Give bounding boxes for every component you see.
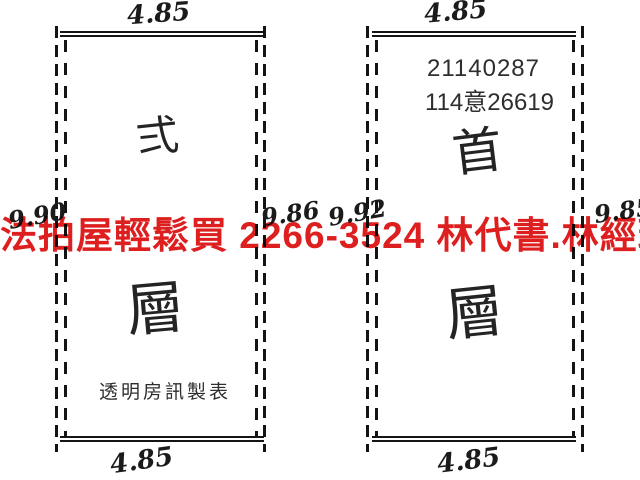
right-unit-border-bottom bbox=[372, 436, 576, 442]
right-unit-case-number-line1: 21140287 bbox=[427, 55, 540, 83]
left-unit-floor-character-top: 弍 bbox=[133, 101, 181, 166]
agent-watermark-text: 法拍屋輕鬆買 2266-3524 林代書.林經理 bbox=[0, 205, 640, 259]
left-unit-border-bottom bbox=[60, 436, 264, 442]
left-unit-border-top bbox=[60, 31, 264, 37]
scanned-floor-plan-page: 4.85 4.85 9.90 9.86 弍 層 透明房訊製表 4.85 4.85… bbox=[0, 0, 640, 480]
left-unit-bottom-dimension: 4.85 bbox=[108, 442, 175, 480]
right-unit-bottom-dimension: 4.85 bbox=[435, 442, 502, 479]
left-unit-maker-label: 透明房訊製表 bbox=[99, 377, 231, 404]
left-unit-top-dimension: 4.85 bbox=[126, 0, 191, 31]
right-unit-floor-character-bottom: 層 bbox=[441, 263, 507, 353]
right-unit-border-top bbox=[372, 31, 576, 37]
left-unit-floor-character-bottom: 層 bbox=[122, 260, 187, 349]
right-unit-floor-character-top: 首 bbox=[448, 109, 506, 187]
right-unit-top-dimension: 4.85 bbox=[423, 0, 489, 30]
